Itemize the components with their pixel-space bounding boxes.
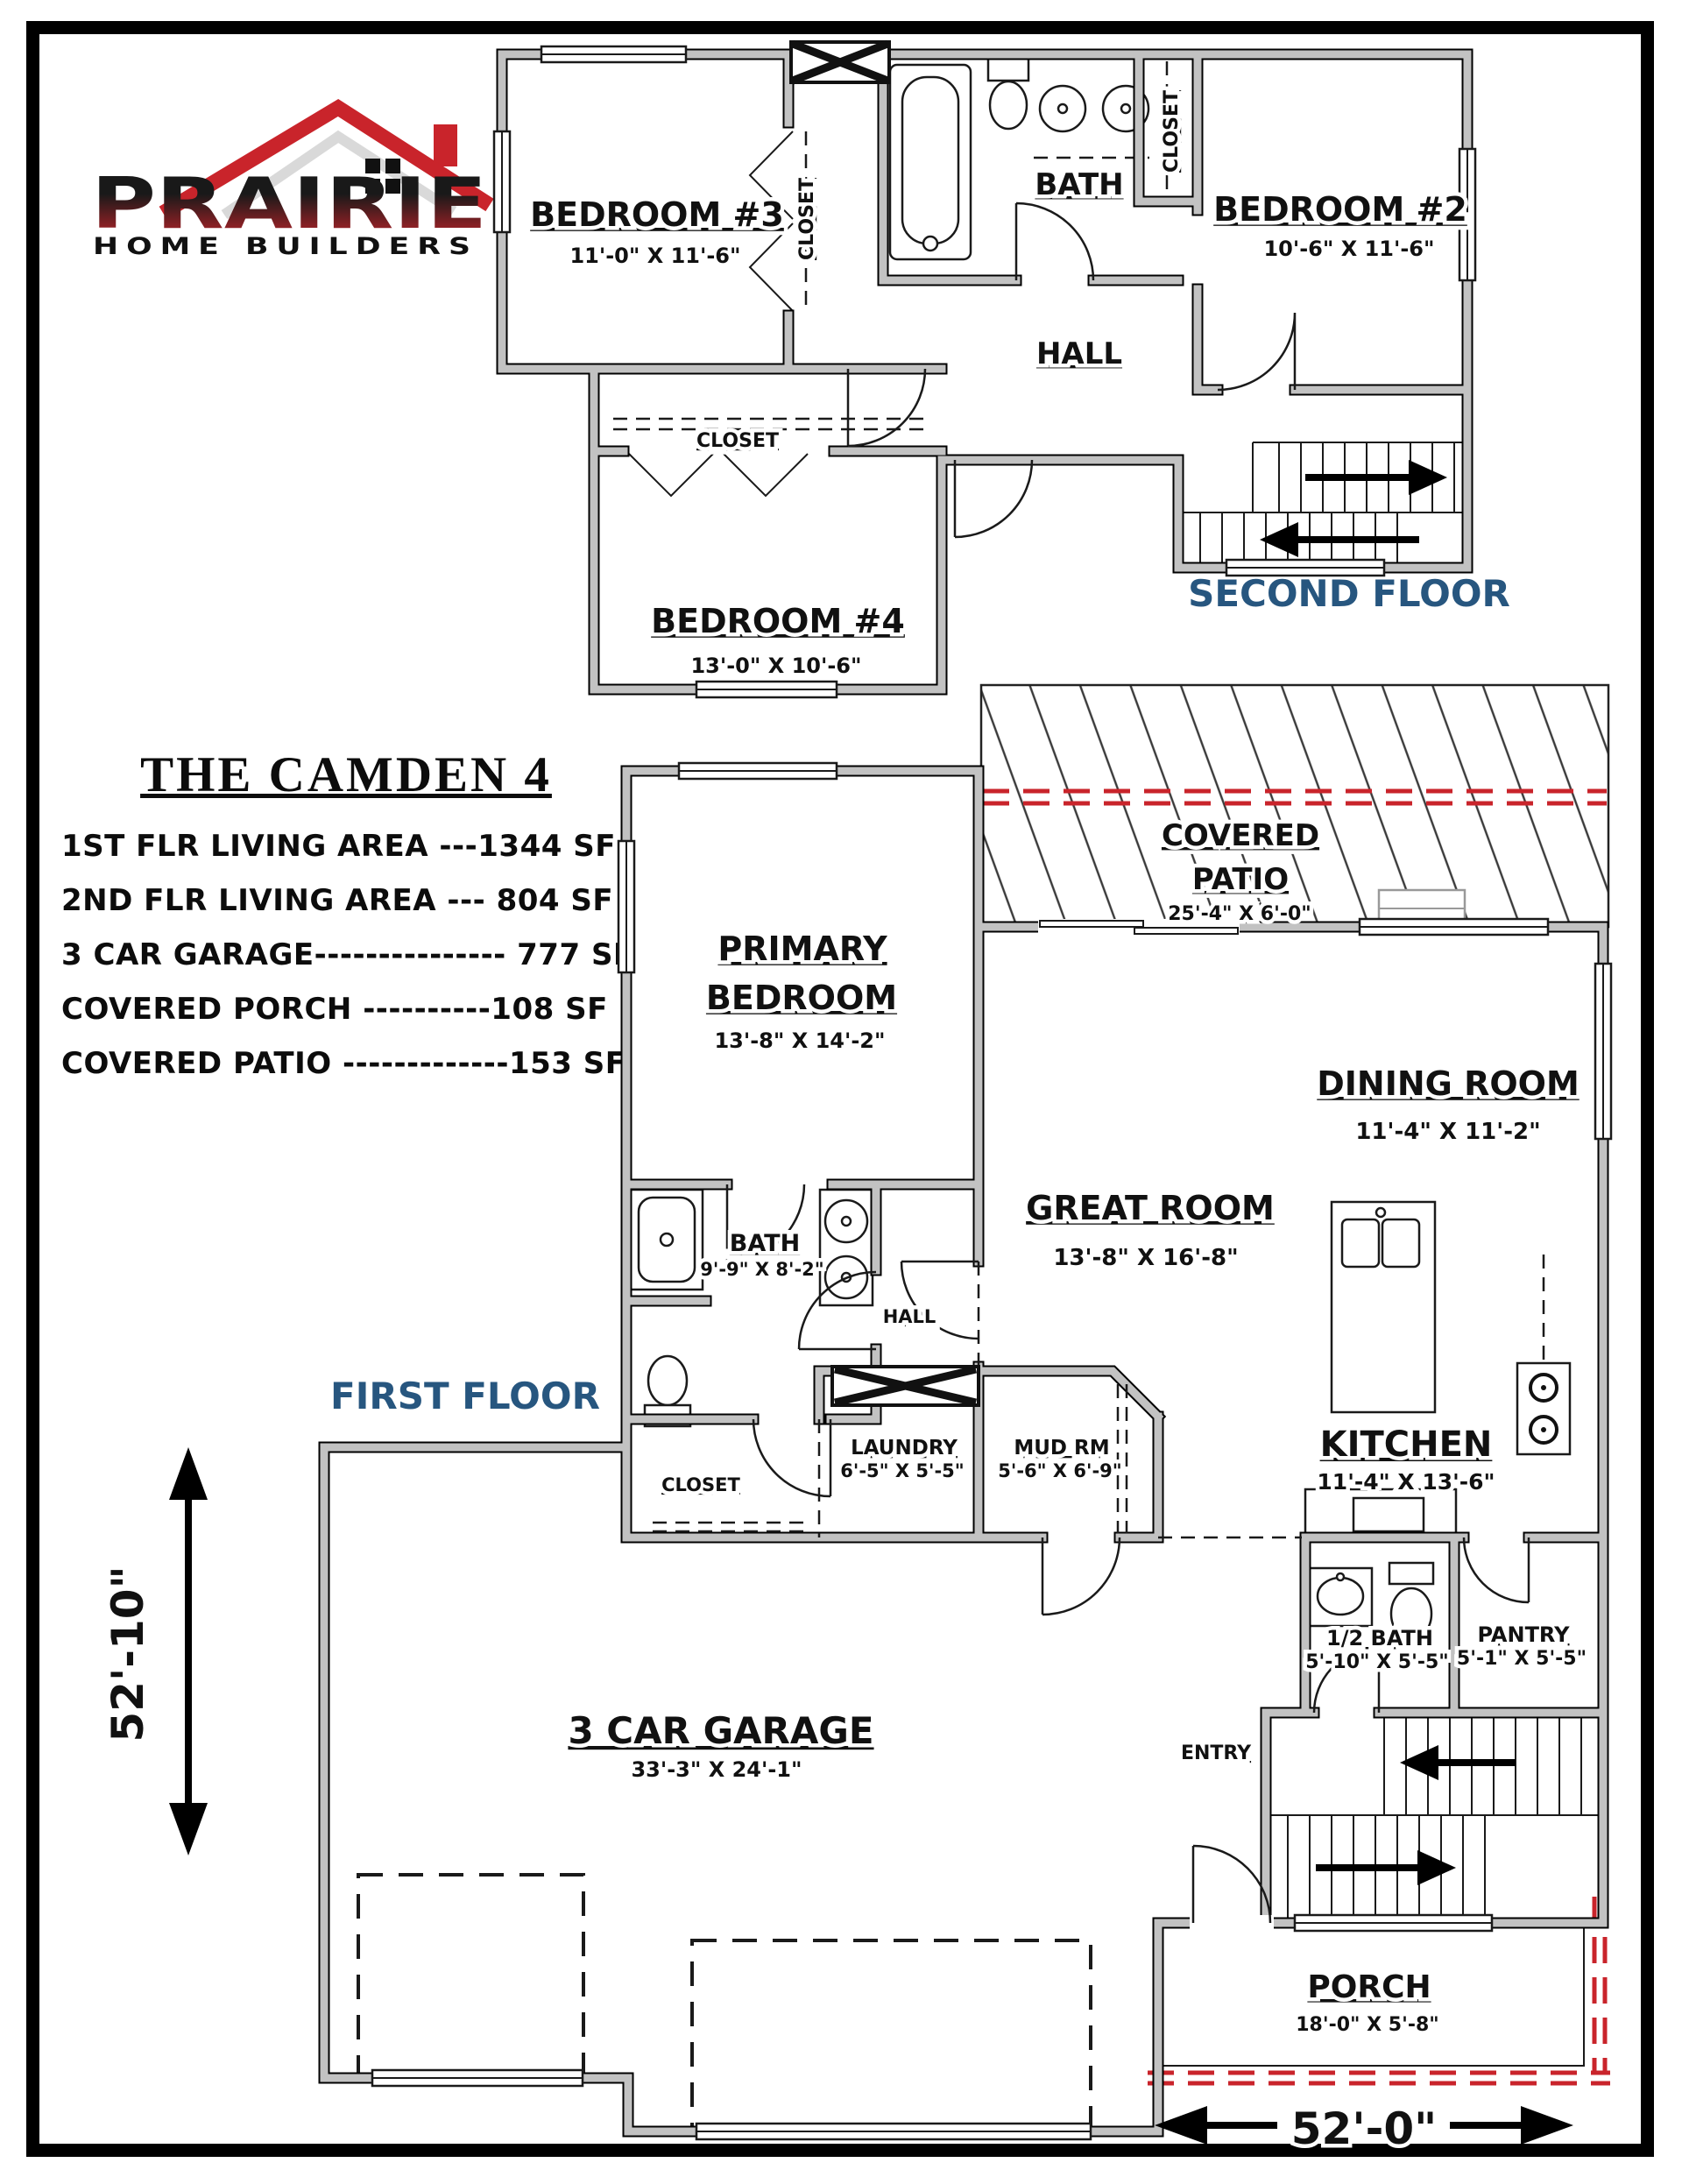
room-label-bedroom2: BEDROOM #2 [1213, 190, 1467, 229]
room-label-bath1: BATH [730, 1230, 800, 1257]
width-dimension: 52'-0" [1155, 2103, 1573, 2154]
kitchen-island-sink [1332, 1202, 1435, 1412]
double-sink-vanity [1034, 86, 1149, 158]
front-door-opening [1190, 1915, 1274, 1931]
room-label-porch: PORCH [1307, 1969, 1431, 2005]
room-dim-dining: 11'-4" X 11'-2" [1355, 1119, 1540, 1145]
room-label-half-bath: 1/2 BATH [1326, 1626, 1433, 1650]
garage-door-1 [372, 2070, 583, 2086]
room-dim-garage: 33'-3" X 24'-1" [631, 1757, 802, 1782]
room-label-patio-2: PATIO [1192, 862, 1289, 897]
room-dim-bedroom4: 13'-0" X 10'-6" [690, 654, 861, 678]
room-label-dining: DINING ROOM [1317, 1064, 1580, 1103]
bathtub [890, 65, 971, 259]
plan-drawing: BEDROOM #3 11'-0" X 11'-6" CLOSET BATH C… [0, 0, 1682, 2184]
garage-bay-2 [692, 1940, 1091, 2129]
window-great-room [1360, 919, 1548, 935]
room-label-patio-1: COVERED [1162, 818, 1319, 853]
room-label-hall1: HALL [883, 1306, 936, 1327]
room-dim-primary: 13'-8" X 14'-2" [714, 1028, 885, 1053]
room-dim-pantry: 5'-1" X 5'-5" [1457, 1648, 1587, 1670]
room-label-bedroom3: BEDROOM #3 [530, 195, 784, 234]
second-floor-caption: SECOND FLOOR [1188, 572, 1510, 615]
room-label-mud: MUD RM [1014, 1437, 1109, 1460]
room-label-pantry: PANTRY [1478, 1622, 1571, 1647]
room-label-bedroom4: BEDROOM #4 [651, 602, 905, 640]
window-dining-right [1595, 964, 1611, 1139]
floor-plan-sheet: PRAIRIE HOME BUILDERS THE CAMDEN 4 1ST F… [0, 0, 1682, 2184]
room-label-hall2: HALL [1036, 336, 1122, 371]
room-label-closet-b4: CLOSET [696, 430, 779, 452]
room-label-entry: ENTRY [1181, 1742, 1252, 1764]
window-bedroom3-left [494, 131, 510, 232]
room-dim-bedroom3: 11'-0" X 11'-6" [569, 244, 740, 268]
beam-marker [832, 1367, 979, 1405]
covered-patio-area [981, 685, 1608, 927]
room-label-great: GREAT ROOM [1026, 1189, 1275, 1227]
dim-text-height: 52'-10" [102, 1566, 153, 1742]
room-label-closet1: CLOSET [661, 1474, 740, 1495]
room-dim-laundry: 6'-5" X 5'-5" [840, 1460, 964, 1481]
window-porch-wall [1295, 1915, 1492, 1931]
stairs-second-floor [1178, 442, 1467, 568]
room-label-garage: 3 CAR GARAGE [568, 1709, 873, 1752]
dim-text-width: 52'-0" [1291, 2103, 1437, 2154]
window-primary-top [679, 763, 837, 779]
room-label-kitchen: KITCHEN [1320, 1424, 1493, 1465]
height-dimension: 52'-10" [102, 1447, 208, 1855]
stairs-first-floor [1266, 1713, 1603, 1923]
window-bedroom4-bottom [696, 682, 837, 697]
toilet [988, 58, 1028, 129]
shower [631, 1190, 703, 1290]
room-dim-great: 13'-8" X 16'-8" [1053, 1245, 1238, 1271]
first-floor-caption: FIRST FLOOR [330, 1375, 600, 1417]
room-dim-patio: 25'-4" X 6'-0" [1168, 903, 1311, 925]
room-label-closet-bath: CLOSET [796, 178, 818, 260]
window-bedroom3-top [541, 46, 686, 62]
room-label-primary-1: PRIMARY [717, 929, 887, 968]
room-dim-bath1: 9'-9" X 8'-2" [700, 1259, 823, 1280]
garage-bay-1 [358, 1875, 583, 2074]
room-dim-mud: 5'-6" X 6'-9" [998, 1460, 1121, 1481]
room-dim-half-bath: 5'-10" X 5'-5" [1305, 1651, 1448, 1673]
room-label-laundry: LAUNDRY [851, 1437, 958, 1460]
room-dim-bedroom2: 10'-6" X 11'-6" [1263, 237, 1434, 261]
room-label-bath2: BATH [1035, 167, 1123, 202]
attic-access-marker [791, 42, 889, 82]
half-bath-sink [1309, 1568, 1372, 1626]
room-label-closet-b2: CLOSET [1161, 90, 1183, 173]
room-label-primary-2: BEDROOM [706, 979, 897, 1017]
room-dim-porch: 18'-0" X 5'-8" [1296, 2014, 1438, 2036]
cooktop [1517, 1363, 1570, 1454]
window-primary-left [618, 841, 634, 972]
room-dim-kitchen: 11'-4" X 13'-6" [1317, 1469, 1495, 1495]
garage-door-2 [696, 2124, 1091, 2139]
